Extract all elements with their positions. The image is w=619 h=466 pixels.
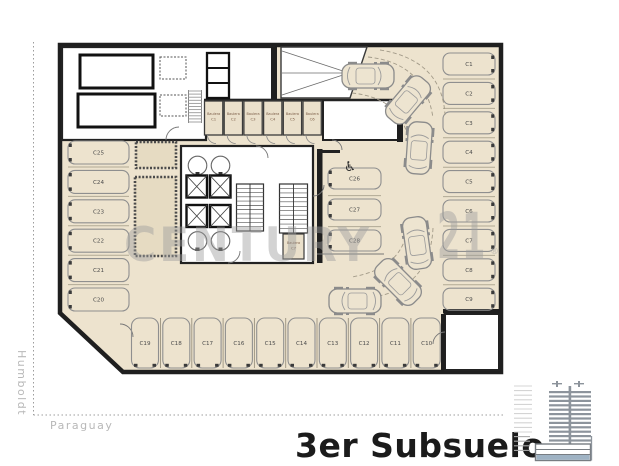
parking-space-label: C11 [390,341,401,347]
storage-unit-label: Baulera [286,112,299,116]
parking-space-label: C22 [93,239,104,245]
car-icon [342,62,394,90]
parking-space-label: C4 [465,150,473,156]
parking-space-label: C25 [93,151,104,157]
elevation-spine [569,386,572,444]
street-label-paraguay: Paraguay [50,419,113,432]
parking-space-label: C24 [93,180,104,186]
elevator-shaft [187,176,208,198]
parking-space-label: C18 [171,341,182,347]
storage-unit-code: C1 [211,117,217,122]
hatched-shaft [136,142,176,168]
service-shafts [207,53,229,98]
street-label-humboldt: Humboldt [15,350,28,416]
parking-space-label: C14 [296,341,307,347]
parking-space-label: C1 [465,62,473,68]
parking-space-label: C2 [465,91,472,97]
floor-title: 3er Subsuelo [295,426,545,465]
water-tank [78,94,155,127]
parking-space-label: C26 [349,177,360,183]
parking-space-label: C3 [465,121,473,127]
floor-plan: Baulera C7 C25C24C23C22C21C20 C1C2C3C4C5… [0,0,619,466]
storage-unit-code: C6 [310,117,316,122]
parking-space-label: C12 [359,341,370,347]
elevation-labels-ticks [514,386,532,450]
parking-space-label: C21 [93,268,104,274]
pit-dashed [160,95,186,116]
storage-unit-label: Baulera [227,112,240,116]
parking-space-label: C10 [421,341,432,347]
car-icon [329,287,381,315]
storage-unit-label: Baulera [266,112,279,116]
parking-space-label: C16 [233,341,244,347]
parking-space-label: C20 [93,298,104,304]
registered-mark: ® [490,247,502,257]
parking-space-label: C23 [93,209,104,215]
storage-unit-label: Baulera [306,112,319,116]
storage-unit-label: Baulera [247,112,260,116]
watermark-brand: CENTURY [124,218,372,273]
parking-space-label: C15 [265,341,276,347]
storage-unit-code: C3 [251,117,257,122]
parking-space-label: C27 [349,208,360,214]
storage-unit-code: C4 [270,117,276,122]
storage-unit-code: C2 [231,117,237,122]
elevator-shaft [210,176,231,198]
elevation-basement-highlight [537,455,590,460]
exit-room [445,314,499,370]
parking-space-label: C19 [139,341,150,347]
water-tank [80,55,153,88]
storage-unit-label: Baulera [207,112,220,116]
parking-space-label: C17 [202,341,213,347]
accessible-icon: ♿ [344,159,356,175]
car-icon [403,121,435,175]
storage-unit-code: C5 [290,117,296,122]
parking-space-label: C5 [465,180,473,186]
parking-space-label: C9 [465,297,473,303]
watermark-number: 21 [437,200,487,273]
parking-space-label: C13 [327,341,338,347]
floorplan-page: Baulera C7 C25C24C23C22C21C20 C1C2C3C4C5… [0,0,619,466]
pit-dashed [160,57,186,79]
elevation-mast [552,381,584,387]
